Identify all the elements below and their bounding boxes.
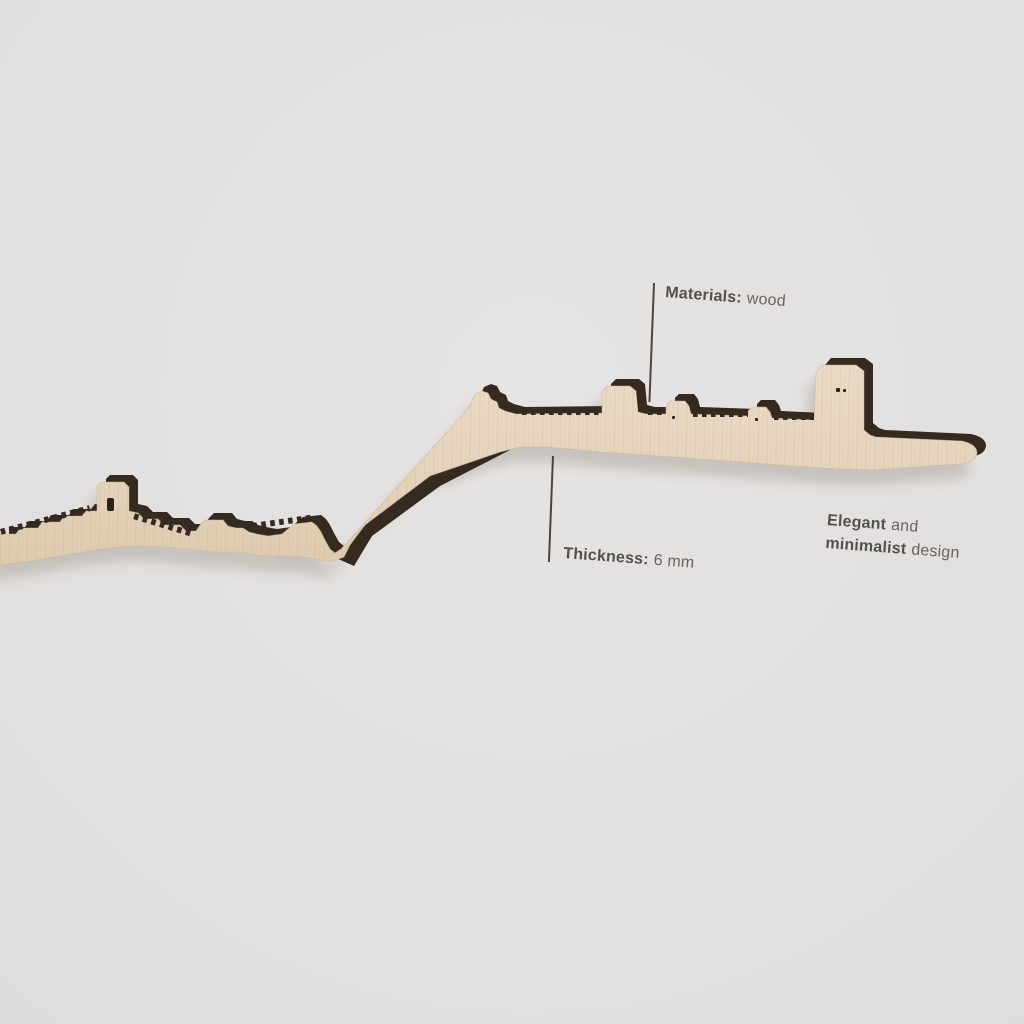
thickness-value: 6 mm — [653, 552, 695, 572]
product-scene: Materials:wood Thickness:6 mm Elegantand… — [0, 0, 1024, 1024]
materials-value: wood — [746, 290, 786, 310]
